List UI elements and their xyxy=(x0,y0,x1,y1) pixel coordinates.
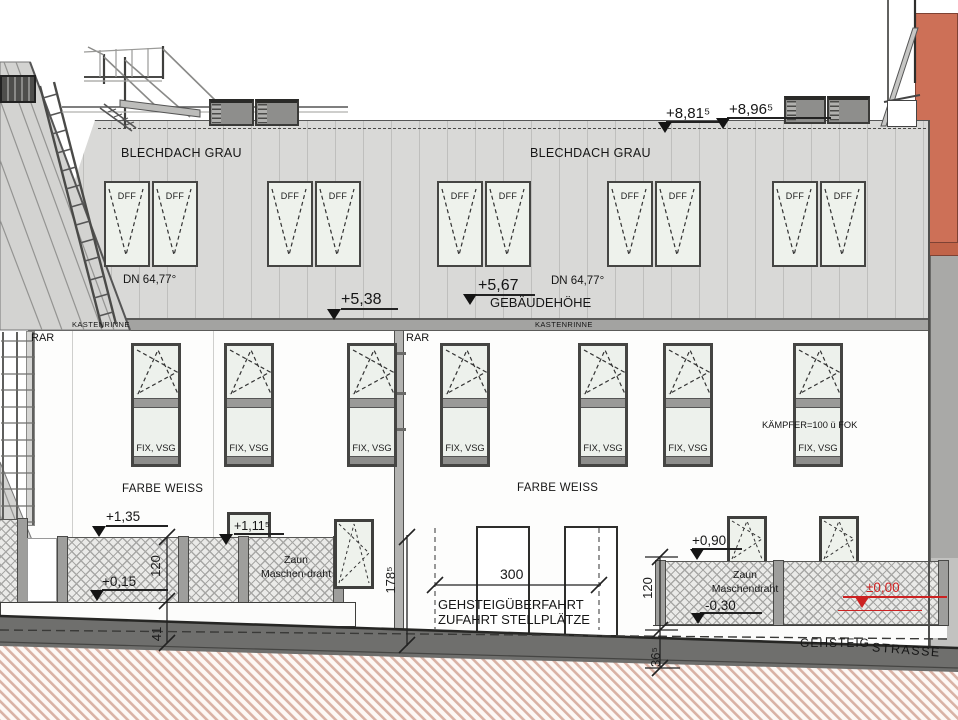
fence-right-label-line1: Zaun xyxy=(700,568,790,582)
fence-left-label: Zaun Maschen-draht xyxy=(252,553,340,581)
level-parapet-marker xyxy=(716,118,730,129)
dim-wall-height: 178⁵ xyxy=(383,560,399,600)
level-parapet-line xyxy=(727,117,831,119)
level-street-zero-marker xyxy=(855,597,869,608)
level-gutter-marker xyxy=(327,309,341,320)
fence-left-label-line2: Maschen-draht xyxy=(252,567,340,581)
level-sill-marker xyxy=(219,534,233,545)
roof-material-label-left: BLECHDACH GRAU xyxy=(121,146,242,160)
downpipe-label-left: RAR xyxy=(31,332,54,344)
level-fence-left-bottom-line xyxy=(102,589,168,591)
level-fence-left-top-marker xyxy=(92,526,106,537)
level-building-height-value: +5,67 xyxy=(478,277,518,295)
sidewalk-label: GEHSTEIG xyxy=(800,636,870,650)
level-parapet-value: +8,96⁵ xyxy=(729,101,773,118)
roof-material-label-right: BLECHDACH GRAU xyxy=(530,146,651,160)
dim-drive-width: 300 xyxy=(500,566,523,582)
level-fence-left-top-value: +1,35 xyxy=(106,509,140,524)
level-fence-right-top-value: +0,90 xyxy=(692,533,726,548)
level-fence-left-top-line xyxy=(106,525,168,527)
level-fence-right-bottom-value: -0,30 xyxy=(705,598,736,613)
downpipe-label-right: RAR xyxy=(406,332,429,344)
fence-left-label-line1: Zaun xyxy=(252,553,340,567)
dim-plinth-left: 41 xyxy=(149,614,165,654)
roof-slope-label-right: DN 64,77° xyxy=(551,275,604,287)
level-street-zero-value: ±0,00 xyxy=(866,580,900,595)
fence-right-label-line2: Maschendraht xyxy=(700,582,790,596)
level-roof-edge-marker xyxy=(658,122,672,133)
fence-right-label: Zaun Maschendraht xyxy=(700,568,790,596)
level-fence-left-bottom-marker xyxy=(90,590,104,601)
level-fence-left-bottom-value: +0,15 xyxy=(102,574,136,589)
drive-note-line1: GEHSTEIGÜBERFAHRT xyxy=(438,597,584,612)
level-fence-right-top-marker xyxy=(690,549,704,560)
roof-slope-label-left: DN 64,77° xyxy=(123,274,176,286)
level-gutter-value: +5,38 xyxy=(341,291,381,309)
level-building-height-label: GEBÄUDEHÖHE xyxy=(490,295,591,310)
level-gutter-line xyxy=(341,308,398,310)
dim-fence-right-height: 120 xyxy=(640,568,656,608)
level-sill-line xyxy=(234,533,284,535)
level-roof-edge-value: +8,81⁵ xyxy=(666,105,710,122)
level-fence-right-bottom-line xyxy=(700,612,762,614)
color-note-right: FARBE WEISS xyxy=(517,482,598,494)
dim-curb: 36⁵ xyxy=(648,637,664,677)
gutter-label-left: KASTENRINNE xyxy=(72,320,130,329)
level-street-zero-line2 xyxy=(838,610,922,611)
drive-note-line2: ZUFAHRT STELLPLÄTZE xyxy=(438,612,590,627)
level-building-height-marker xyxy=(463,294,477,305)
level-sill-value: +1,11⁵ xyxy=(234,519,270,533)
kampfer-note: KÄMPFER=100 ü FOK xyxy=(762,420,857,430)
gutter-label-right: KASTENRINNE xyxy=(535,320,593,329)
elevation-drawing: FIX, VSG FIX, VSG FIX, VSG FIX, VSG FIX,… xyxy=(0,0,958,720)
dim-fence-left-height: 120 xyxy=(148,546,164,586)
level-fence-right-bottom-marker xyxy=(691,613,705,624)
color-note-left: FARBE WEISS xyxy=(122,483,203,495)
